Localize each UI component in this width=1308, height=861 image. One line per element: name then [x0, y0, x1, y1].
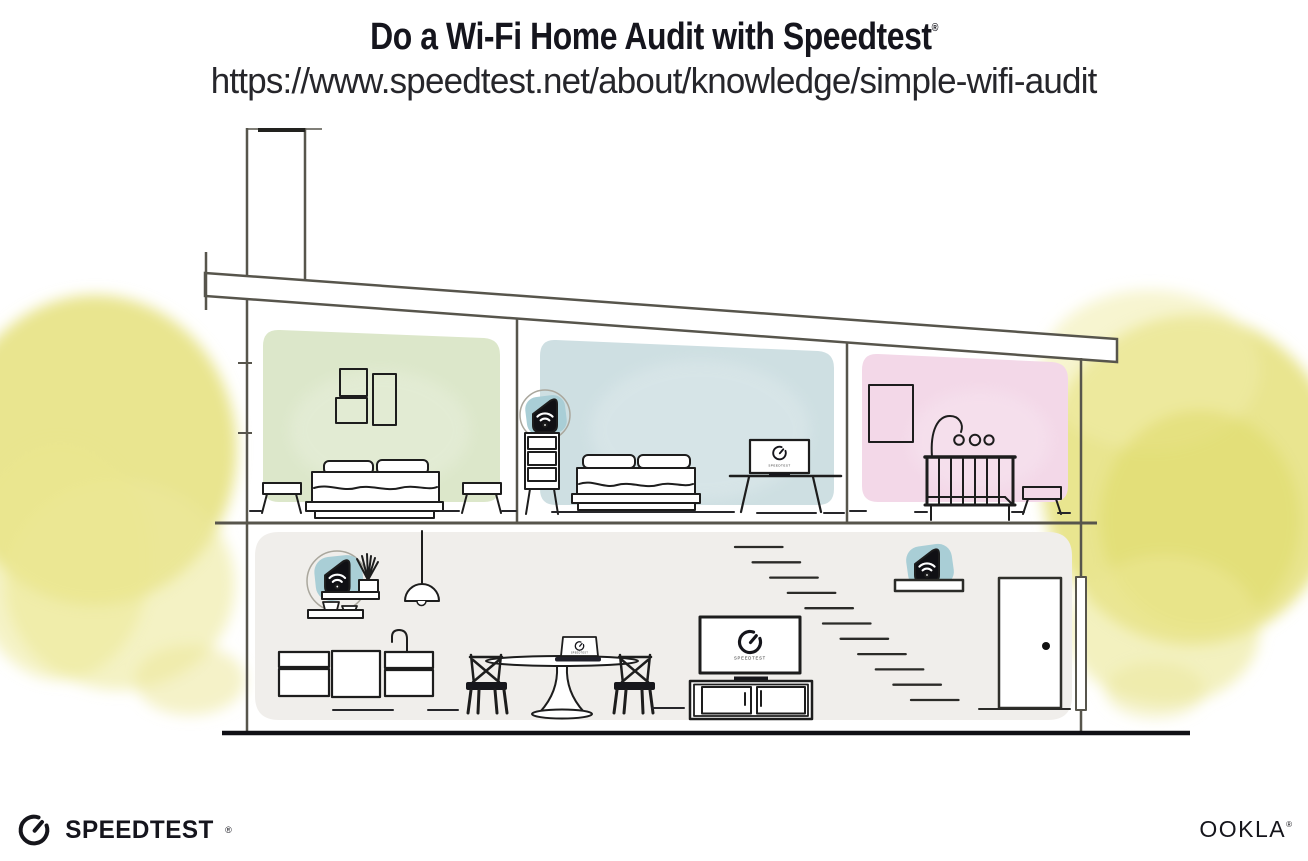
tv: SPEEDTEST: [700, 617, 800, 681]
chimney: [247, 128, 322, 281]
tv-screen-label: SPEEDTEST: [734, 656, 766, 661]
wall-shelf: [322, 592, 379, 599]
speedtest-gauge-icon: [14, 810, 54, 850]
title-text: Do a Wi-Fi Home Audit with Speedtest: [370, 16, 932, 58]
registered-mark: ®: [1286, 820, 1292, 829]
monitor-screen-label: SPEEDTEST: [768, 464, 790, 468]
registered-mark: ®: [932, 22, 938, 34]
ookla-logo: OOKLA®: [1199, 816, 1292, 843]
laptop: SPEEDTEST: [555, 637, 601, 662]
sidelight-window: [1076, 577, 1086, 710]
header: Do a Wi-Fi Home Audit with Speedtest® ht…: [0, 0, 1308, 102]
ookla-wordmark: OOKLA: [1199, 816, 1286, 842]
wall-shelf: [895, 580, 963, 591]
floor-dashes: [850, 511, 1070, 513]
door-knob: [1042, 642, 1050, 650]
registered-mark: ®: [225, 825, 232, 835]
foliage-left: [0, 295, 245, 715]
kitchen-cabinets: [279, 651, 433, 697]
floor-dashes: [552, 512, 844, 513]
wifi-home-audit-illustration: SPEEDTEST: [0, 0, 1308, 861]
speedtest-wordmark: SPEEDTEST: [65, 816, 214, 845]
page-title: Do a Wi-Fi Home Audit with Speedtest®: [0, 16, 1308, 59]
laptop-screen-label: SPEEDTEST: [571, 653, 588, 655]
speedtest-logo: SPEEDTEST®: [14, 810, 232, 850]
media-console: [690, 681, 812, 719]
desktop-monitor: SPEEDTEST: [750, 440, 809, 477]
article-url: https://www.speedtest.net/about/knowledg…: [0, 60, 1308, 102]
